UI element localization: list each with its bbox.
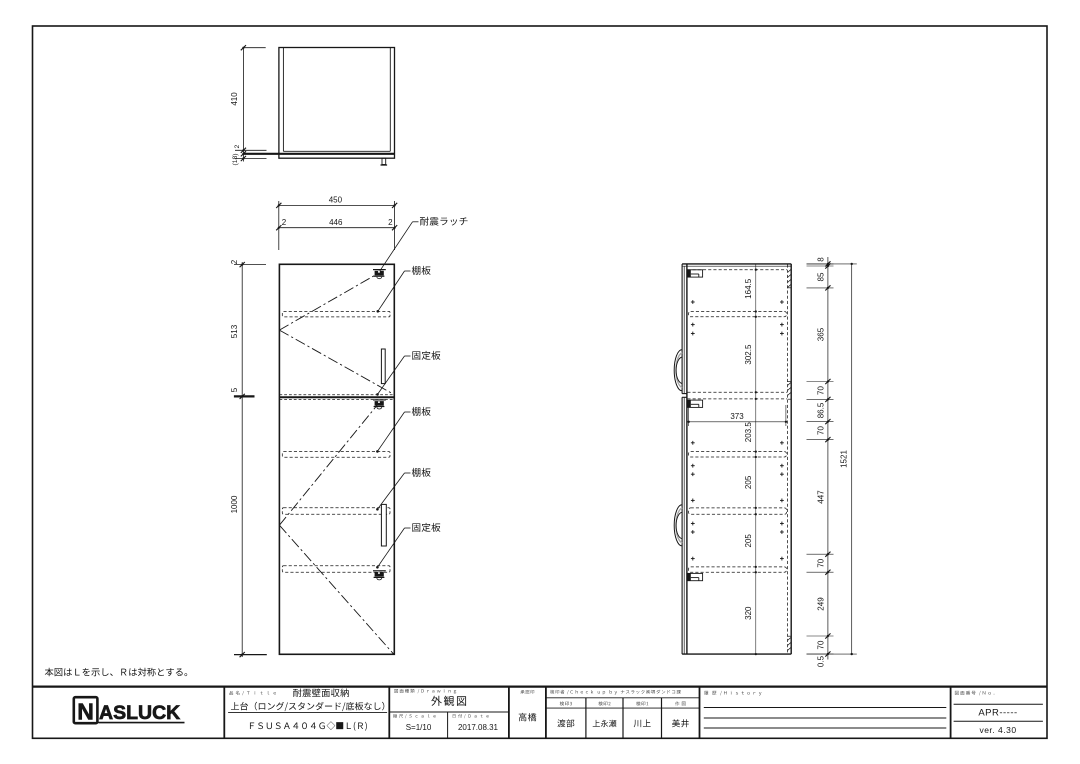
svg-text:70: 70 xyxy=(816,640,825,649)
svg-text:N: N xyxy=(77,699,94,725)
svg-text:446: 446 xyxy=(329,218,343,227)
svg-text:1000: 1000 xyxy=(230,495,239,513)
svg-text:373: 373 xyxy=(730,412,744,421)
svg-text:85: 85 xyxy=(816,272,825,281)
svg-text:2: 2 xyxy=(282,218,287,227)
svg-text:70: 70 xyxy=(816,558,825,567)
svg-text:8: 8 xyxy=(816,257,825,262)
svg-text:2: 2 xyxy=(230,259,239,264)
svg-text:450: 450 xyxy=(329,196,343,205)
svg-text:447: 447 xyxy=(816,490,825,504)
svg-text:513: 513 xyxy=(230,324,239,338)
svg-text:365: 365 xyxy=(816,327,825,341)
svg-text:2: 2 xyxy=(388,218,393,227)
svg-text:205: 205 xyxy=(744,475,753,489)
svg-text:410: 410 xyxy=(230,92,239,106)
svg-text:302.5: 302.5 xyxy=(744,344,753,365)
svg-text:249: 249 xyxy=(816,597,825,611)
svg-text:320: 320 xyxy=(744,606,753,620)
svg-text:APR-----: APR----- xyxy=(978,707,1017,718)
svg-text:86.5: 86.5 xyxy=(816,402,825,418)
svg-text:2017.08.31: 2017.08.31 xyxy=(458,723,499,732)
svg-text:ASLUCK: ASLUCK xyxy=(99,702,180,724)
svg-text:2: 2 xyxy=(234,144,241,148)
svg-text:205: 205 xyxy=(744,534,753,548)
svg-text:1521: 1521 xyxy=(839,450,848,468)
svg-text:203.5: 203.5 xyxy=(744,422,753,443)
svg-text:164.5: 164.5 xyxy=(744,278,753,299)
svg-text:ver. 4.30: ver. 4.30 xyxy=(979,725,1016,735)
svg-text:70: 70 xyxy=(816,426,825,435)
svg-text:5: 5 xyxy=(230,387,239,392)
svg-text:70: 70 xyxy=(816,386,825,395)
svg-text:(18): (18) xyxy=(232,153,239,165)
svg-text:0.5: 0.5 xyxy=(816,655,825,667)
svg-text:S=1/10: S=1/10 xyxy=(406,723,432,732)
